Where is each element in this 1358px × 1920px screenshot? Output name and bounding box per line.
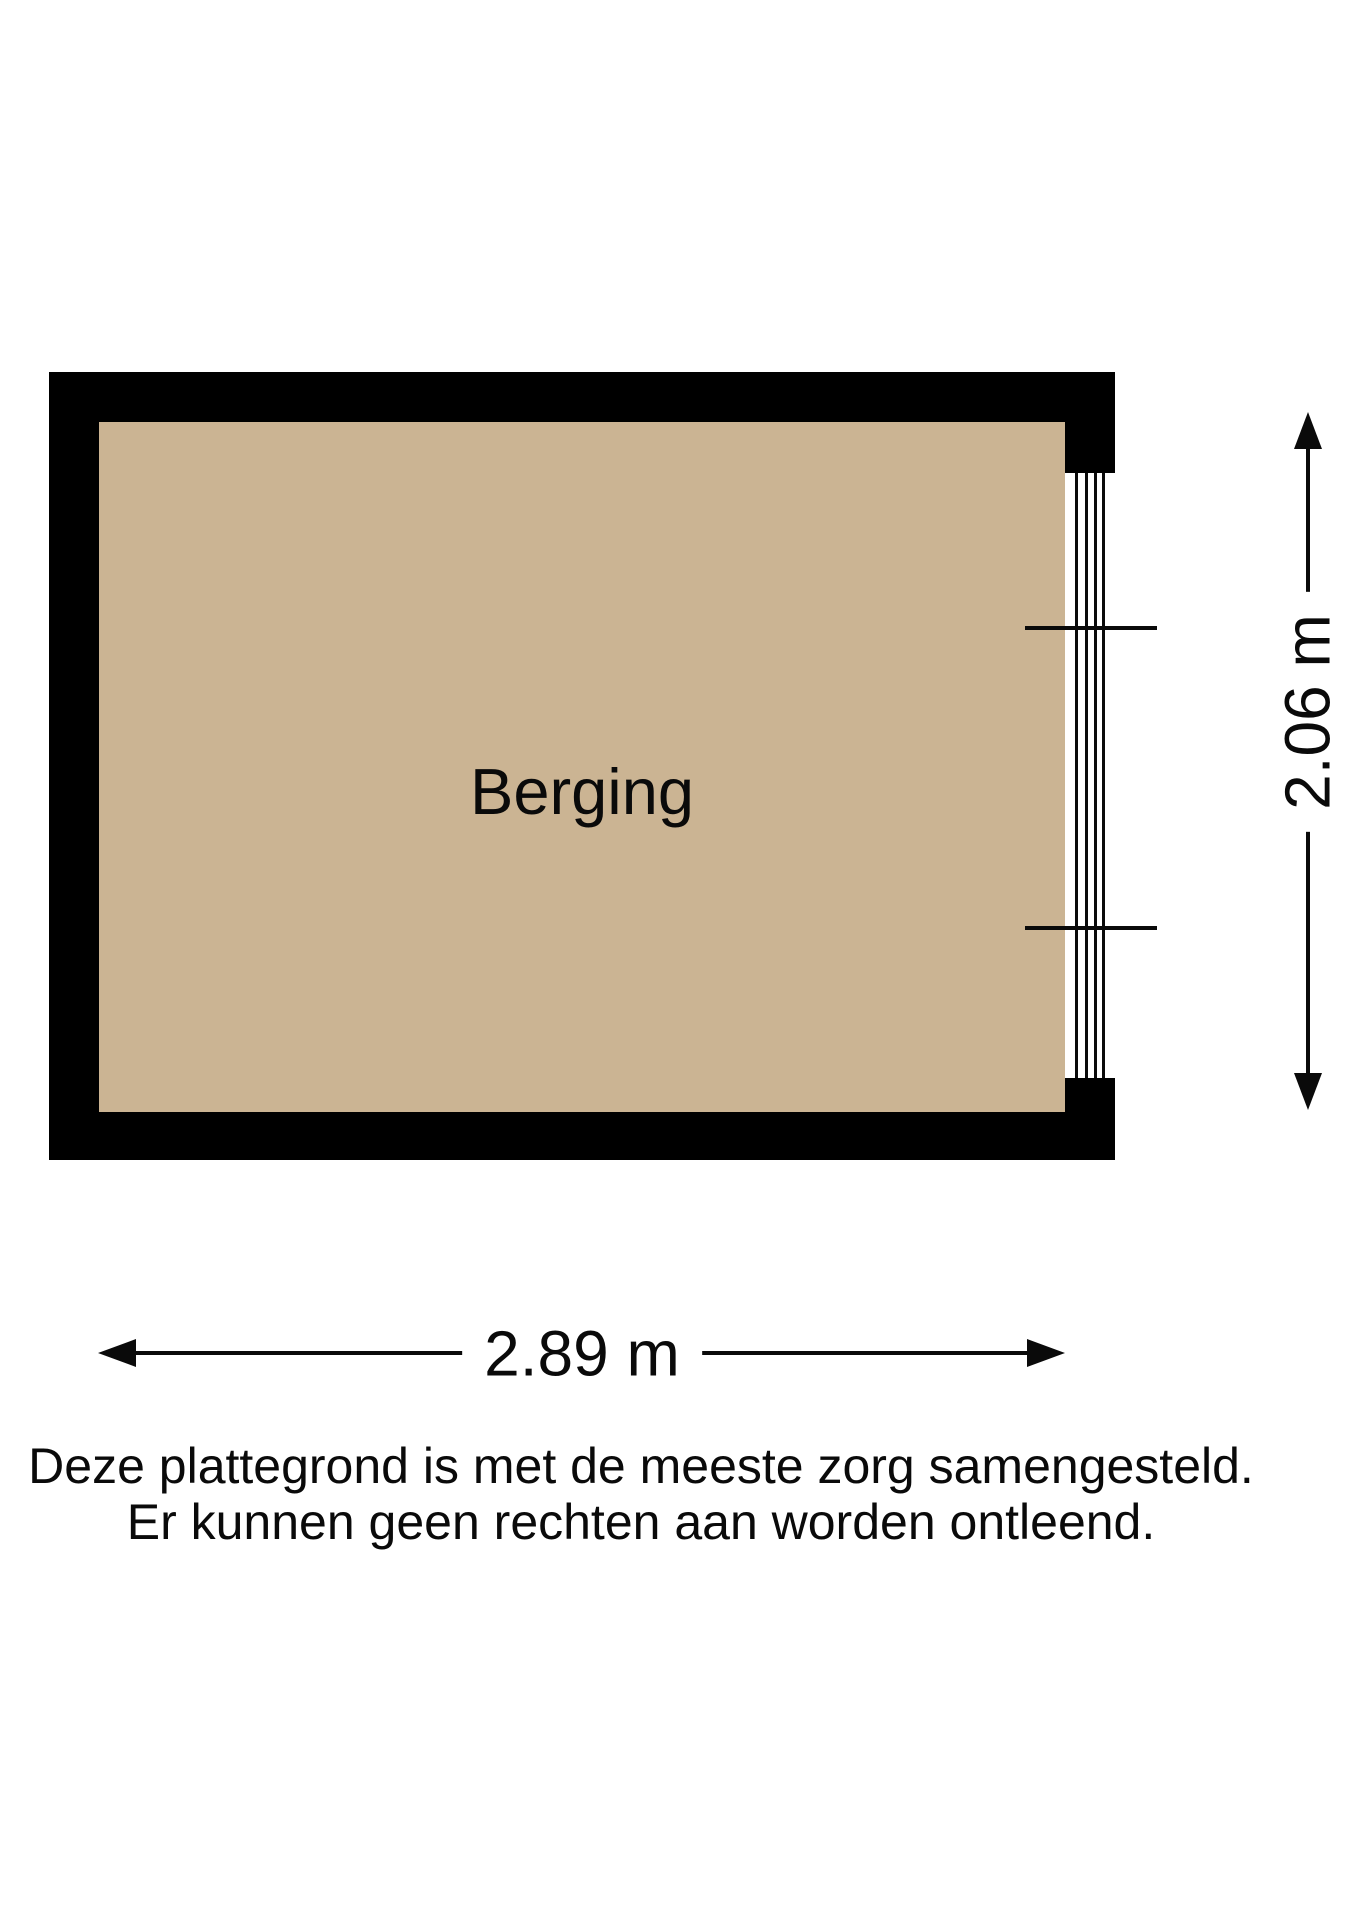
window-pane-line xyxy=(1075,473,1078,1078)
arrow-left-icon xyxy=(98,1339,136,1367)
wall-top xyxy=(49,372,1115,422)
window xyxy=(1065,473,1115,1078)
window-extent-tick-top xyxy=(1025,626,1157,630)
wall-bottom xyxy=(49,1112,1115,1160)
room-label: Berging xyxy=(470,754,694,829)
room-floor: Berging xyxy=(99,422,1065,1112)
window-pane-line xyxy=(1085,473,1088,1078)
window-extent-tick-bottom xyxy=(1025,926,1157,930)
disclaimer: Deze plattegrond is met de meeste zorg s… xyxy=(0,1438,1282,1550)
disclaimer-line-1: Deze plattegrond is met de meeste zorg s… xyxy=(0,1438,1282,1494)
width-dimension-label: 2.89 m xyxy=(462,1318,702,1389)
arrow-right-icon xyxy=(1027,1339,1065,1367)
arrow-up-icon xyxy=(1294,412,1322,449)
height-dimension-label: 2.06 m xyxy=(1272,592,1343,832)
window-pane-line xyxy=(1102,473,1105,1078)
wall-left xyxy=(49,372,99,1160)
floorplan-page: Berging 2.06 m 2.89 m Deze plattegrond i… xyxy=(0,0,1358,1920)
wall-right-top-stub xyxy=(1065,372,1115,473)
wall-right-bottom-stub xyxy=(1065,1078,1115,1160)
window-pane-line xyxy=(1094,473,1097,1078)
disclaimer-line-2: Er kunnen geen rechten aan worden ontlee… xyxy=(0,1494,1282,1550)
arrow-down-icon xyxy=(1294,1073,1322,1110)
